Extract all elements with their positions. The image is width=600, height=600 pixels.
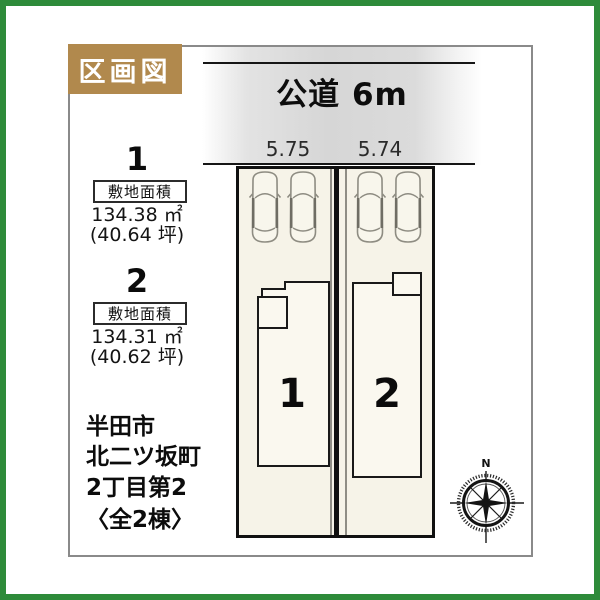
address-line-2: 北二ツ坂町 <box>86 446 236 469</box>
car-icon <box>353 170 387 244</box>
compass-north-label: N <box>481 457 490 470</box>
compass-rose-icon: N <box>448 450 528 548</box>
building-1-footprint <box>254 268 336 470</box>
building-2-number: 2 <box>359 374 415 414</box>
lot-2-area-tsubo: (40.62 坪) <box>82 347 192 369</box>
address-line-3: 2丁目第2 <box>86 477 236 500</box>
car-icon <box>248 170 282 244</box>
lot-2-heading-number: 2 <box>82 265 192 297</box>
car-icon <box>391 170 425 244</box>
plot-map-page: 公道 6m 5.75 5.74 1 2 1 敷地面積 134.38 ㎡ (40.… <box>0 0 600 600</box>
map-title-badge: 区画図 <box>68 44 182 94</box>
frontage-dimension-lot1: 5.75 <box>248 139 328 159</box>
lot-2-area-label-box: 敷地面積 <box>93 302 187 325</box>
lot-1-area-tsubo: (40.64 坪) <box>82 225 192 247</box>
road-edge-line-bottom <box>203 163 475 165</box>
road-edge-line-top <box>203 62 475 64</box>
building-1-number: 1 <box>264 374 320 414</box>
car-icon <box>286 170 320 244</box>
address-line-1: 半田市 <box>86 416 236 439</box>
address-line-4: 〈全2棟〉 <box>86 509 236 532</box>
road-label: 公道 6m <box>202 78 482 112</box>
frontage-dimension-lot2: 5.74 <box>340 139 420 159</box>
lot-1-heading-number: 1 <box>82 143 192 175</box>
lot-1-area-label-box: 敷地面積 <box>93 180 187 203</box>
